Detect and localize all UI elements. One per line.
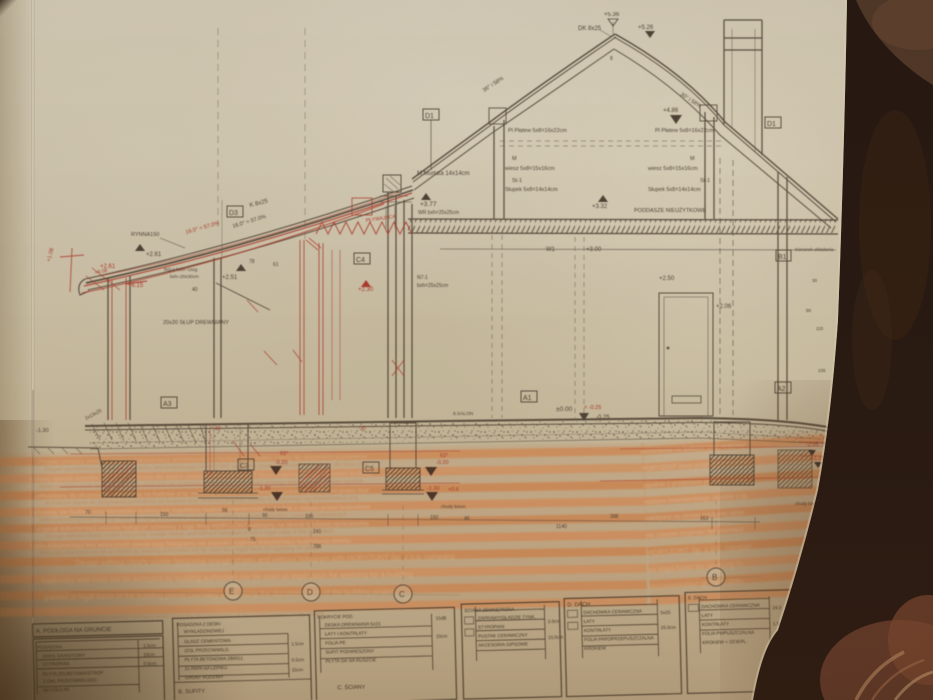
svg-text:+3.32: +3.32 bbox=[592, 204, 608, 210]
svg-text:105: 105 bbox=[818, 368, 826, 373]
svg-text:2x PAPA NA LEPIKU: 2x PAPA NA LEPIKU bbox=[185, 665, 228, 671]
svg-text:St-1: St-1 bbox=[700, 178, 710, 184]
svg-text:+3.00: +3.00 bbox=[586, 247, 602, 253]
svg-text:WR bxh=25x25cm: WR bxh=25x25cm bbox=[418, 210, 459, 216]
svg-text:C4: C4 bbox=[356, 257, 365, 264]
svg-text:Pl Płatew 5x8=16x22cm: Pl Płatew 5x8=16x22cm bbox=[508, 128, 567, 134]
svg-text:kopia dokumentacji bez widoczn: kopia dokumentacji bez widocznych pasow … bbox=[30, 538, 351, 551]
svg-text:zgodnie z przepisami prawa bud: zgodnie z przepisami prawa budowla bbox=[643, 476, 747, 490]
svg-text:-0.20: -0.20 bbox=[275, 460, 288, 466]
svg-text:1.5cm: 1.5cm bbox=[143, 643, 156, 648]
svg-text:+3.77: +3.77 bbox=[420, 201, 437, 208]
svg-text:150: 150 bbox=[430, 515, 439, 521]
svg-text:KONTRŁATY: KONTRŁATY bbox=[584, 627, 611, 633]
svg-text:POKRYCIE POD.: POKRYCIE POD. bbox=[317, 614, 353, 620]
svg-text:FOLIA PE: FOLIA PE bbox=[325, 640, 346, 646]
svg-text:N7-1: N7-1 bbox=[417, 275, 428, 281]
svg-text:Projekt niniejszy stanowi oryg: Projekt niniejszy stanowi oryginal dokum… bbox=[39, 453, 368, 466]
svg-text:niniejsza kopia moze byc wykor: niniejsza kopia moze byc wykorzystana wy… bbox=[39, 479, 364, 491]
svg-text:16.0° = 57.0%: 16.0° = 57.0% bbox=[232, 214, 267, 230]
svg-text:STYROPIAN: STYROPIAN bbox=[478, 624, 505, 630]
svg-text:Słupek 5x8=14x14cm: Słupek 5x8=14x14cm bbox=[505, 187, 558, 193]
svg-text:36° i 58%: 36° i 58% bbox=[482, 76, 505, 94]
svg-text:w dobrym stanie do otrzymania: w dobrym stanie do otrzymania pozwolenia… bbox=[44, 495, 358, 506]
svg-text:C5: C5 bbox=[365, 466, 374, 473]
svg-text:wiesz 5x8=15x16cm: wiesz 5x8=15x16cm bbox=[647, 166, 698, 172]
svg-text:HORYZONT biuro projektowe oraz: HORYZONT biuro projektowe oraz inw bbox=[642, 459, 751, 473]
svg-text:0.5cm: 0.5cm bbox=[292, 657, 305, 662]
svg-text:8: 8 bbox=[610, 56, 613, 62]
svg-text:oryginal dokumentacji posiada: oryginal dokumentacji posiada hologram o… bbox=[36, 520, 369, 533]
svg-text:8: 8 bbox=[248, 527, 251, 533]
svg-text:1.5cm: 1.5cm bbox=[773, 621, 786, 626]
svg-text:56: 56 bbox=[222, 508, 228, 514]
svg-text:nie stanowi oryginalu dokument: nie stanowi oryginalu dokumentacji bbox=[646, 526, 744, 539]
svg-text:FOLIA PAROPRZEPUSZCZALNA: FOLIA PAROPRZEPUSZCZALNA bbox=[584, 635, 655, 642]
svg-text:786: 786 bbox=[313, 544, 322, 550]
svg-text:90: 90 bbox=[262, 513, 268, 519]
svg-text:±0.00: ±0.00 bbox=[556, 406, 573, 413]
svg-text:C: C bbox=[399, 590, 405, 599]
svg-text:odtworzony do otrzymania pozwo: odtworzony do otrzymania pozwolenia na b… bbox=[35, 487, 368, 500]
svg-text:bxh=25x25cm: bxh=25x25cm bbox=[417, 283, 448, 289]
svg-text:+0.6: +0.6 bbox=[448, 487, 459, 493]
svg-text:documentation of the buildin: documentation of the buildin bbox=[649, 576, 743, 591]
svg-text:63°: 63° bbox=[280, 451, 288, 457]
svg-text:ZAPRAWY/GŁADZIE TYNK.: ZAPRAWY/GŁADZIE TYNK. bbox=[478, 614, 536, 620]
svg-text:C3: C3 bbox=[240, 463, 249, 470]
svg-text:2 OKŁ PRZECIWWILGOC.: 2 OKŁ PRZECIWWILGOC. bbox=[43, 677, 98, 683]
svg-text:5x25: 5x25 bbox=[660, 610, 671, 615]
svg-text:WYKŁADZINOWEJ: WYKŁADZINOWEJ bbox=[184, 628, 224, 634]
svg-text:8.SALON: 8.SALON bbox=[453, 411, 474, 417]
svg-text:zamawiac sie budowy oraz kiero: zamawiac sie budowy oraz kierownika budo… bbox=[30, 504, 371, 517]
svg-text:25.0cm: 25.0cm bbox=[661, 625, 676, 630]
svg-text:DACHÓWKA CERAMICZNA: DACHÓWKA CERAMICZNA bbox=[701, 602, 761, 610]
svg-text:ŁATY I KONTRŁATY: ŁATY I KONTRŁATY bbox=[325, 631, 367, 637]
svg-text:+2.61: +2.61 bbox=[100, 264, 116, 270]
svg-text:30: 30 bbox=[812, 278, 818, 283]
svg-text:C. ŚCIANY: C. ŚCIANY bbox=[337, 683, 365, 692]
svg-text:M Murłata 14x14cm: M Murłata 14x14cm bbox=[417, 171, 470, 177]
svg-text:+2.50: +2.50 bbox=[659, 276, 675, 282]
svg-text:K 8x25: K 8x25 bbox=[249, 198, 269, 209]
svg-text:dokonywania rysunku lub jego k: dokonywania rysunku lub jego kopii bez z… bbox=[40, 512, 347, 523]
svg-text:15cm: 15cm bbox=[292, 667, 304, 672]
svg-text:15.0cm: 15.0cm bbox=[548, 635, 563, 640]
svg-text:ŁATY: ŁATY bbox=[584, 619, 595, 624]
svg-text:398: 398 bbox=[610, 514, 619, 520]
svg-text:W1: W1 bbox=[546, 247, 556, 253]
svg-text:M: M bbox=[512, 156, 517, 162]
svg-text:A1: A1 bbox=[523, 395, 532, 402]
svg-text:B. SUFITY: B. SUFITY bbox=[178, 689, 205, 696]
svg-text:chudy beton: chudy beton bbox=[263, 507, 288, 512]
svg-text:KROKIEW: KROKIEW bbox=[584, 645, 606, 651]
svg-text:-0.20: -0.20 bbox=[436, 460, 449, 466]
svg-text:bxh=20x30cm: bxh=20x30cm bbox=[170, 274, 199, 279]
svg-text:16.0° = 57.0%: 16.0° = 57.0% bbox=[185, 221, 220, 236]
svg-text:E. DACH: E. DACH bbox=[688, 595, 707, 600]
svg-text:w dobry sposob wszelkie prawa: w dobry sposob wszelkie prawa zastrzezon… bbox=[28, 470, 372, 483]
svg-text:+6.08: +6.08 bbox=[94, 268, 108, 276]
svg-text:78: 78 bbox=[249, 259, 255, 265]
svg-text:15cm: 15cm bbox=[436, 634, 448, 639]
svg-text:PUSTAK CERAMICZNY: PUSTAK CERAMICZNY bbox=[478, 632, 528, 638]
svg-text:1140: 1140 bbox=[556, 524, 567, 530]
svg-text:SUFIT PODWIESZONY: SUFIT PODWIESZONY bbox=[325, 648, 374, 654]
svg-text:70: 70 bbox=[85, 510, 91, 516]
svg-text:D1: D1 bbox=[425, 113, 434, 120]
svg-text:IZOL PRZECIWWILG.: IZOL PRZECIWWILG. bbox=[184, 647, 230, 653]
svg-text:30: 30 bbox=[360, 426, 366, 432]
svg-text:M: M bbox=[690, 156, 695, 162]
svg-text:A. PODŁOGA NA GRUNCIE: A. PODŁOGA NA GRUNCIE bbox=[36, 627, 112, 635]
svg-text:-0.25: -0.25 bbox=[596, 415, 610, 421]
svg-text:+2.06: +2.06 bbox=[716, 304, 732, 310]
svg-text:D3: D3 bbox=[229, 210, 238, 217]
svg-text:3.0cm: 3.0cm bbox=[548, 619, 561, 624]
svg-text:STYROPIAN: STYROPIAN bbox=[43, 661, 70, 667]
svg-text:granted in using the documents: granted in using the documents Germany w… bbox=[48, 612, 325, 623]
svg-text:+4.86: +4.86 bbox=[663, 108, 679, 114]
svg-text:KROKIEW + OCIEPL.: KROKIEW + OCIEPL. bbox=[702, 639, 747, 645]
svg-text:wiesz 5x8=15x16cm: wiesz 5x8=15x16cm bbox=[504, 166, 555, 172]
svg-text:10cm: 10cm bbox=[143, 652, 155, 657]
svg-text:ŚCIANA ZEWNĘTRZNA: ŚCIANA ZEWNĘTRZNA bbox=[464, 605, 515, 613]
svg-text:granted in legal basis of the: granted in legal basis of the building p… bbox=[43, 587, 396, 602]
svg-text:336: 336 bbox=[305, 514, 314, 520]
svg-text:Design without clearly visible: Design without clearly visible horizonta… bbox=[76, 552, 456, 568]
svg-text:legal copy and must not be acc: legal copy and must not be accepted by b… bbox=[41, 570, 413, 585]
svg-text:-1.30: -1.30 bbox=[36, 428, 49, 434]
svg-text:-1.30: -1.30 bbox=[812, 456, 825, 462]
svg-text:Pl Płatew 5x8=16x22cm: Pl Płatew 5x8=16x22cm bbox=[655, 128, 714, 134]
svg-text:B: B bbox=[712, 573, 717, 582]
svg-text:+6.15: +6.15 bbox=[128, 283, 144, 289]
svg-text:75: 75 bbox=[250, 537, 256, 543]
svg-text:PŁYTA BETONOWA ZBROJ.: PŁYTA BETONOWA ZBROJ. bbox=[184, 656, 243, 662]
svg-text:30: 30 bbox=[215, 426, 221, 432]
svg-text:Design without clearly visible: Design without clearly visible horizonta… bbox=[46, 529, 334, 540]
svg-text:D. DACH: D. DACH bbox=[567, 602, 590, 609]
svg-text:FOLIA PWPUSZCZALNA: FOLIA PWPUSZCZALNA bbox=[702, 630, 755, 636]
svg-text:46: 46 bbox=[464, 516, 470, 522]
svg-text:RQ-1 bxh= czeg: RQ-1 bxh= czeg bbox=[164, 267, 198, 272]
svg-text:as legal basis for applying fo: as legal basis for applying fo bbox=[648, 559, 743, 574]
svg-text:ŁATY: ŁATY bbox=[702, 613, 713, 618]
svg-text:chudy beton: chudy beton bbox=[795, 501, 820, 506]
svg-text:20x20 SŁUP DREWNIANY: 20x20 SŁUP DREWNIANY bbox=[163, 320, 229, 326]
svg-text:115: 115 bbox=[847, 300, 853, 308]
svg-text:105: 105 bbox=[847, 352, 853, 360]
svg-text:30° i 58%: 30° i 58% bbox=[679, 92, 702, 110]
svg-text:B1: B1 bbox=[778, 254, 787, 261]
svg-text:241: 241 bbox=[313, 529, 322, 535]
svg-text:30: 30 bbox=[847, 262, 853, 268]
svg-text:90: 90 bbox=[847, 398, 853, 404]
svg-text:KONTRŁATY: KONTRŁATY bbox=[702, 621, 729, 627]
svg-text:HORYZONT Sp. z o.o. compan: HORYZONT Sp. z o.o. compan bbox=[647, 542, 752, 558]
svg-text:-1.30: -1.30 bbox=[427, 486, 440, 492]
svg-text:PODDASZE NIEUŻYTKOWE: PODDASZE NIEUŻYTKOWE bbox=[634, 207, 706, 214]
svg-text:chudy beton: chudy beton bbox=[441, 504, 466, 509]
svg-text:15dB: 15dB bbox=[436, 616, 447, 621]
svg-text:Kierunek układania: Kierunek układania bbox=[795, 247, 834, 252]
svg-text:-1.30: -1.30 bbox=[258, 486, 271, 492]
svg-text:A3: A3 bbox=[163, 401, 172, 408]
svg-text:pozwolenia na budowe oraz real: pozwolenia na budowe oraz realizacji bbox=[641, 442, 746, 456]
svg-text:A2: A2 bbox=[777, 386, 786, 393]
svg-text:Projekt architektoniczno budow: Projekt architektoniczno budowlany domu … bbox=[45, 462, 367, 474]
svg-text:0.5cm: 0.5cm bbox=[144, 661, 157, 666]
svg-text:+5.26: +5.26 bbox=[638, 25, 654, 31]
svg-text:Słupek 5x8=14x14cm: Słupek 5x8=14x14cm bbox=[648, 187, 701, 193]
svg-text:D: D bbox=[307, 588, 313, 597]
svg-text:DK 8x25: DK 8x25 bbox=[578, 26, 602, 32]
svg-text:POSADZKA Z DESKI: POSADZKA Z DESKI bbox=[177, 621, 221, 627]
svg-text:nadzoru inwestorskiego zgodnie: nadzoru inwestorskiego zgodnie z us bbox=[644, 492, 748, 505]
svg-text:1.5cm: 1.5cm bbox=[291, 641, 304, 646]
svg-text:24.0: 24.0 bbox=[772, 605, 782, 610]
svg-text:61: 61 bbox=[273, 262, 279, 268]
svg-text:+1.08: +1.08 bbox=[46, 248, 55, 263]
svg-text:2x13x25: 2x13x25 bbox=[84, 408, 103, 422]
svg-text:-2.05: -2.05 bbox=[806, 442, 819, 448]
svg-text:St-1: St-1 bbox=[512, 178, 522, 184]
svg-text:63°: 63° bbox=[440, 453, 448, 459]
svg-text:+2.30: +2.30 bbox=[358, 287, 374, 293]
svg-text:+5.36: +5.36 bbox=[604, 12, 620, 18]
svg-text:E: E bbox=[229, 587, 234, 596]
svg-text:PŁYTA GK NA RUSZCIE: PŁYTA GK NA RUSZCIE bbox=[326, 657, 377, 663]
svg-text:+2.51: +2.51 bbox=[222, 275, 238, 281]
svg-text:= -0.25: = -0.25 bbox=[584, 405, 601, 411]
svg-text:150: 150 bbox=[160, 512, 169, 518]
svg-text:163: 163 bbox=[700, 516, 709, 522]
svg-text:NA FOLII PE: NA FOLII PE bbox=[43, 687, 69, 693]
svg-text:40: 40 bbox=[192, 287, 198, 293]
svg-text:GRES GRANITOWY: GRES GRANITOWY bbox=[42, 653, 85, 659]
svg-text:this copy and must not be acce: this copy and must not be accepted by bu… bbox=[40, 546, 321, 557]
svg-text:90: 90 bbox=[806, 308, 812, 313]
svg-text:D1: D1 bbox=[767, 121, 776, 128]
svg-text:115: 115 bbox=[816, 326, 824, 331]
svg-text:GŁADŹ CEMENTOWA: GŁADŹ CEMENTOWA bbox=[184, 637, 232, 644]
svg-text:naklejony na stronie tytulowej: naklejony na stronie tytulowej oprac bbox=[645, 509, 745, 522]
svg-text:DESKA DREWNIANA 5x15: DESKA DREWNIANA 5x15 bbox=[325, 621, 381, 627]
svg-text:DACHÓWKA CERAMICZNA: DACHÓWKA CERAMICZNA bbox=[583, 608, 643, 616]
svg-text:RYNNA150: RYNNA150 bbox=[131, 232, 159, 238]
svg-text:PŁYTA ŻELBETOWA/STROP: PŁYTA ŻELBETOWA/STROP bbox=[43, 669, 104, 677]
svg-text:POSADZKA: POSADZKA bbox=[37, 644, 63, 650]
svg-text:AKCESORIA GIPSOWE: AKCESORIA GIPSOWE bbox=[478, 641, 528, 647]
svg-text:GRUNT RODZIMY: GRUNT RODZIMY bbox=[185, 674, 224, 680]
svg-text:+0: +0 bbox=[822, 442, 828, 448]
svg-text:PŁYWAJĄCA: PŁYWAJĄCA bbox=[365, 214, 396, 224]
svg-text:+2.61: +2.61 bbox=[146, 252, 162, 258]
